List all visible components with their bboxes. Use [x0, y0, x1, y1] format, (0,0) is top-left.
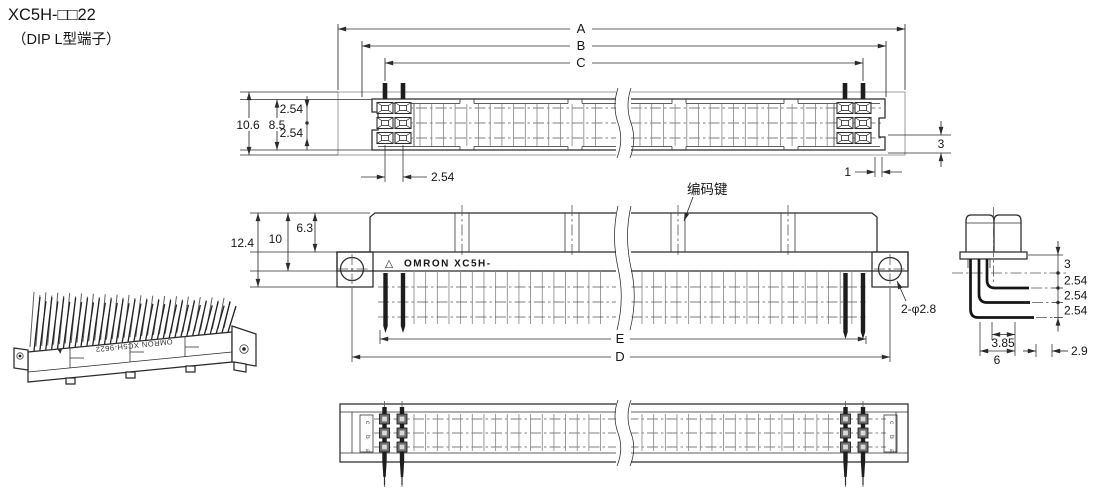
terminal-type-note: （DIP L型端子） — [12, 31, 121, 48]
iso-right-block — [232, 326, 256, 366]
bottom-view-end-pin — [380, 401, 390, 487]
top-view-end-pin — [383, 83, 388, 99]
drawing-canvas: XC5H-□□22 （DIP L型端子） — [0, 0, 1100, 488]
side-view-break-lines — [615, 206, 635, 330]
bottom-view-end-pin — [841, 401, 851, 487]
title-block: XC5H-□□22 （DIP L型端子） — [8, 6, 121, 48]
technical-drawing-page: XC5H-□□22 （DIP L型端子） — [0, 0, 1100, 488]
coding-key-label: 编码键 — [687, 182, 728, 197]
profile-view: 3 2.54 2.54 2.54 3.85 6 2.9 — [952, 207, 1088, 367]
dim-c-label: C — [576, 55, 585, 70]
side-view-pin-grid-2 — [642, 271, 852, 324]
dim-12-4-label: 12.4 — [231, 236, 255, 250]
top-view-end-pin — [843, 83, 848, 99]
side-view: △ OMRON XC5H- — [224, 182, 936, 364]
iso-foot — [126, 372, 135, 378]
side-view-right-flange — [872, 252, 908, 287]
part-number: XC5H-□□22 — [8, 6, 96, 24]
dim-6-3-label: 6.3 — [296, 221, 313, 235]
bottom-view-end-pin — [858, 401, 868, 487]
bottom-view-pin-grid-2 — [642, 414, 829, 451]
dim-2-9-label: 2.9 — [1071, 344, 1088, 358]
iso-foot — [186, 366, 195, 372]
dim-10-6-label: 10.6 — [236, 118, 260, 132]
dim-pitch3-label: 2.54 — [1064, 304, 1088, 318]
profile-post-left — [966, 215, 994, 252]
top-view-right-dimensions — [855, 121, 951, 177]
row-label-b-left: b — [364, 435, 371, 439]
iso-marking-triangle: ▲ — [56, 347, 65, 357]
row-label-c-right: c — [888, 421, 895, 425]
bottom-view-pin-grid — [414, 414, 601, 451]
dim-d-label: D — [615, 349, 624, 364]
dim-e-label: E — [616, 331, 625, 346]
bottom-view-row-plate-left: c b a — [360, 415, 373, 453]
top-view-contact-pads-left — [377, 103, 411, 144]
row-label-c-left: c — [364, 421, 371, 425]
dim-pitch2-label: 2.54 — [1064, 289, 1088, 303]
row-label-a-left: a — [364, 449, 371, 453]
top-view-contact-grid-2 — [640, 104, 827, 146]
dim-seat-3-label: 3 — [1064, 257, 1071, 271]
top-view-dimensions — [338, 22, 905, 97]
dim-3-edge-label: 3 — [938, 137, 945, 151]
dim-a-label: A — [577, 21, 586, 36]
profile-terminals — [971, 259, 1035, 318]
side-view-pin-grid — [414, 271, 601, 324]
top-view-end-pin — [401, 83, 406, 99]
iso-foot — [66, 378, 75, 384]
dim-b-label: B — [577, 38, 586, 53]
top-view-contact-grid — [420, 104, 596, 146]
top-view-break-lines — [615, 88, 634, 158]
bottom-view-end-pin — [397, 401, 407, 487]
bottom-view: c b a c b a — [340, 400, 908, 487]
dim-pitch1-label: 2.54 — [1064, 274, 1088, 288]
row-label-a-right: a — [888, 449, 895, 453]
hole-spec-label: 2-φ2.8 — [901, 302, 936, 316]
dim-10-label: 10 — [269, 232, 283, 246]
top-view-end-pin — [861, 83, 866, 99]
dim-2-54-col-label: 2.54 — [431, 170, 455, 184]
side-view-left-flange — [337, 252, 373, 287]
iso-right-foot — [234, 362, 246, 372]
row-label-b-right: b — [888, 435, 895, 439]
dim-2-54-upper-label: 2.54 — [280, 102, 304, 116]
profile-post-right — [994, 215, 1021, 252]
brand-marking: OMRON XC5H- — [404, 259, 492, 270]
dim-6-label: 6 — [994, 353, 1001, 367]
dim-2-54-lower-label: 2.54 — [280, 126, 304, 140]
bottom-view-break-lines — [615, 400, 634, 466]
dim-3-85-label: 3.85 — [991, 336, 1015, 350]
marking-triangle: △ — [385, 258, 394, 270]
top-view: A B C 10.6 8.5 2.54 2.54 2.54 — [233, 21, 951, 184]
isometric-view: OMRON XC5H-9622 ▲ — [14, 292, 256, 384]
dim-1-edge-label: 1 — [844, 165, 851, 179]
